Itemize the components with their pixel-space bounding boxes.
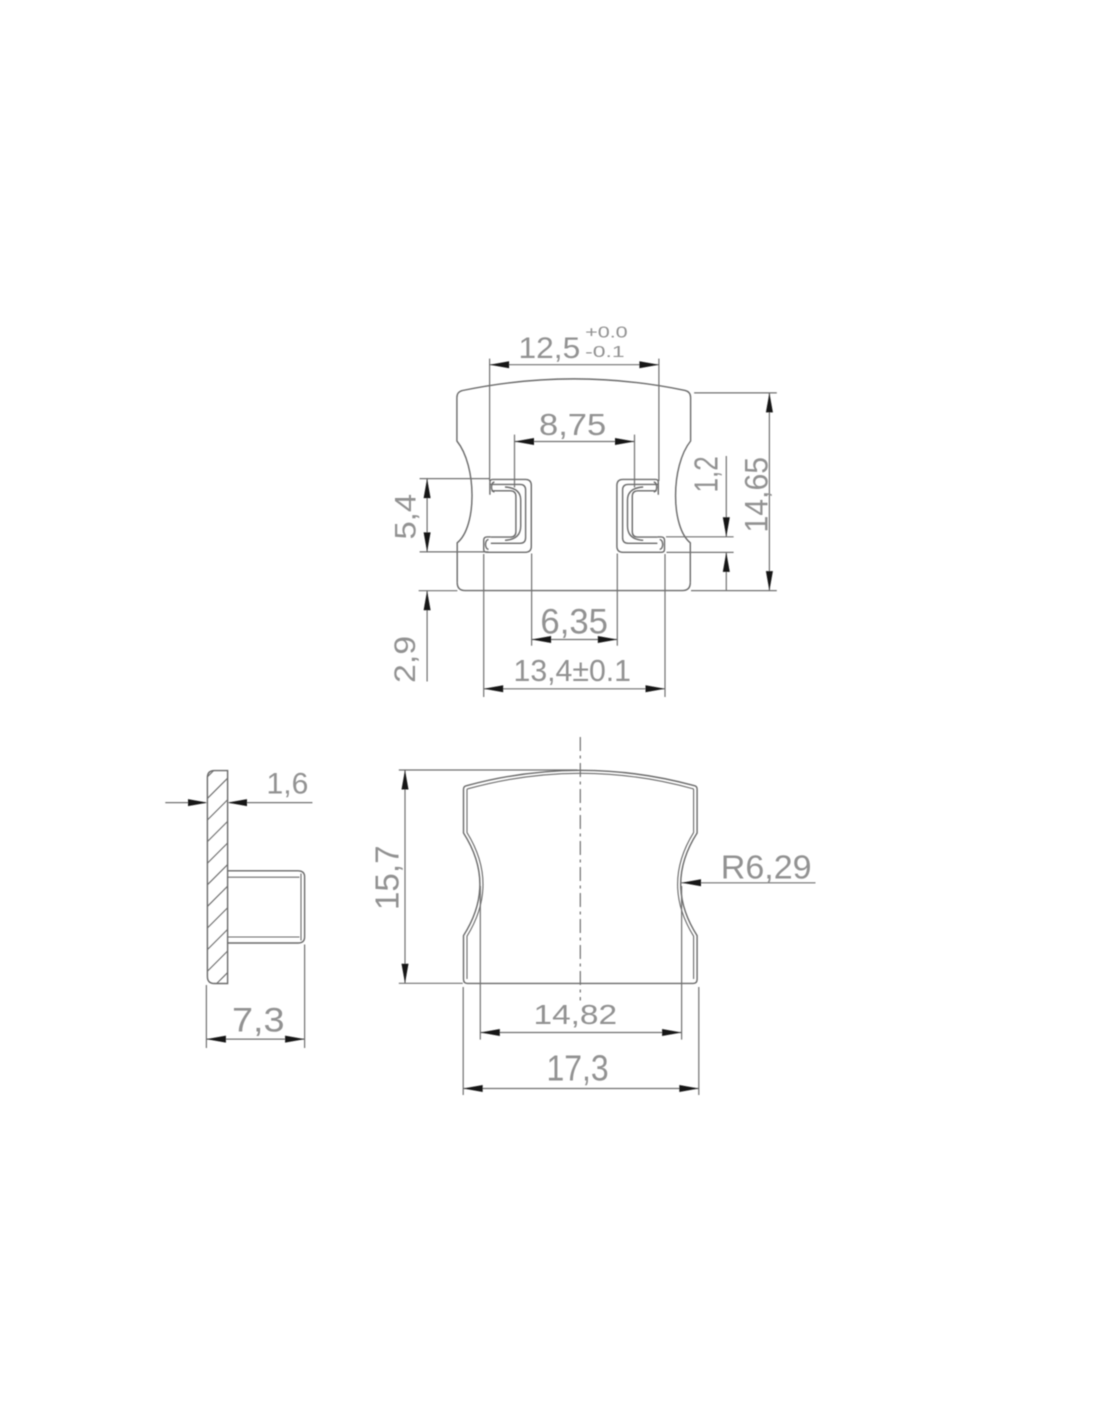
svg-text:5,4: 5,4 — [390, 494, 423, 540]
svg-text:8,75: 8,75 — [539, 408, 606, 442]
svg-text:1,2: 1,2 — [689, 456, 726, 492]
svg-text:14,82: 14,82 — [534, 998, 618, 1030]
svg-text:6,35: 6,35 — [540, 602, 608, 641]
svg-text:14,65: 14,65 — [739, 457, 775, 533]
svg-text:+0.0: +0.0 — [585, 325, 628, 342]
svg-text:15,7: 15,7 — [370, 846, 407, 911]
svg-text:13,4±0.1: 13,4±0.1 — [514, 654, 632, 688]
svg-text:7,3: 7,3 — [232, 1002, 285, 1040]
svg-text:1,6: 1,6 — [267, 768, 309, 801]
svg-text:17,3: 17,3 — [547, 1047, 609, 1088]
svg-text:2,9: 2,9 — [389, 636, 422, 683]
svg-text:R6,29: R6,29 — [721, 849, 812, 886]
svg-text:-0.1: -0.1 — [585, 344, 625, 361]
svg-text:12,5: 12,5 — [519, 332, 581, 365]
